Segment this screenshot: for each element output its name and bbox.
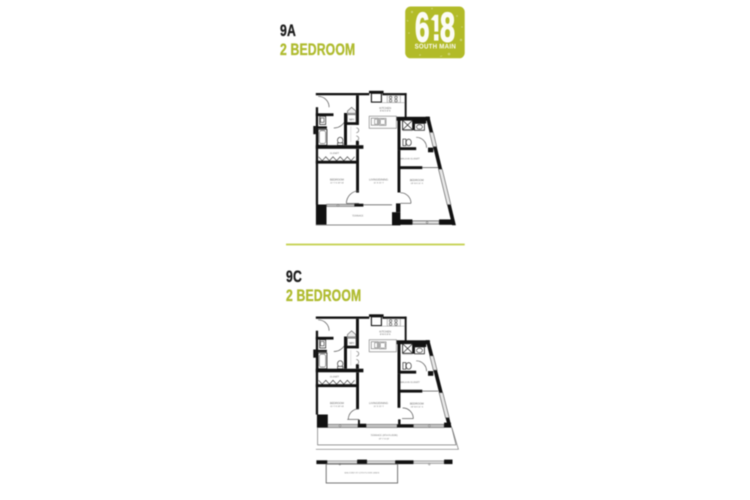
svg-text:BEDROOM: BEDROOM — [330, 402, 345, 405]
svg-text:11’-7 X 10’-10: 11’-7 X 10’-10 — [330, 182, 344, 185]
svg-text:47’-7 X 10’: 47’-7 X 10’ — [379, 438, 390, 441]
svg-text:WH: WH — [349, 117, 354, 121]
svg-text:10’-8 X 11’-4: 10’-8 X 11’-4 — [411, 406, 424, 409]
svg-text:SOUTH MAIN: SOUTH MAIN — [415, 43, 456, 50]
svg-text:8’-8 X 8’-6: 8’-8 X 8’-6 — [380, 333, 391, 336]
svg-text:BALCONY AT 12TH FLOOR LINES: BALCONY AT 12TH FLOOR LINES — [345, 471, 380, 474]
svg-text:CLOSET: CLOSET — [330, 152, 340, 155]
svg-text:BEDROOM: BEDROOM — [410, 179, 425, 182]
svg-text:CLOSET: CLOSET — [330, 375, 340, 378]
svg-text:WH: WH — [349, 341, 354, 345]
svg-text:WALK-IN CLOSET: WALK-IN CLOSET — [400, 381, 420, 384]
svg-text:KITCHEN: KITCHEN — [379, 330, 391, 333]
svg-text:BEDROOM: BEDROOM — [410, 403, 425, 406]
svg-text:KITCHEN: KITCHEN — [379, 107, 391, 110]
svg-text:10’-8 X 11’-4: 10’-8 X 11’-4 — [411, 182, 424, 185]
svg-text:BEDROOM: BEDROOM — [330, 179, 345, 182]
svg-text:WALK-IN CLOSET: WALK-IN CLOSET — [400, 158, 420, 161]
svg-text:11’-7 X 10’-10: 11’-7 X 10’-10 — [330, 405, 344, 408]
svg-text:8’-8 X 8’-6: 8’-8 X 8’-6 — [380, 110, 391, 113]
svg-text:11’ X 21’-7: 11’ X 21’-7 — [373, 182, 384, 185]
svg-text:TERRACE: TERRACE — [352, 214, 364, 217]
svg-text:11’ X 21’-7: 11’ X 21’-7 — [373, 405, 384, 408]
svg-text:LIVING/DINING: LIVING/DINING — [369, 402, 388, 405]
svg-text:LIVING/DINING: LIVING/DINING — [369, 179, 388, 182]
svg-text:TERRACE (9TH FLOOR): TERRACE (9TH FLOOR) — [370, 434, 397, 437]
